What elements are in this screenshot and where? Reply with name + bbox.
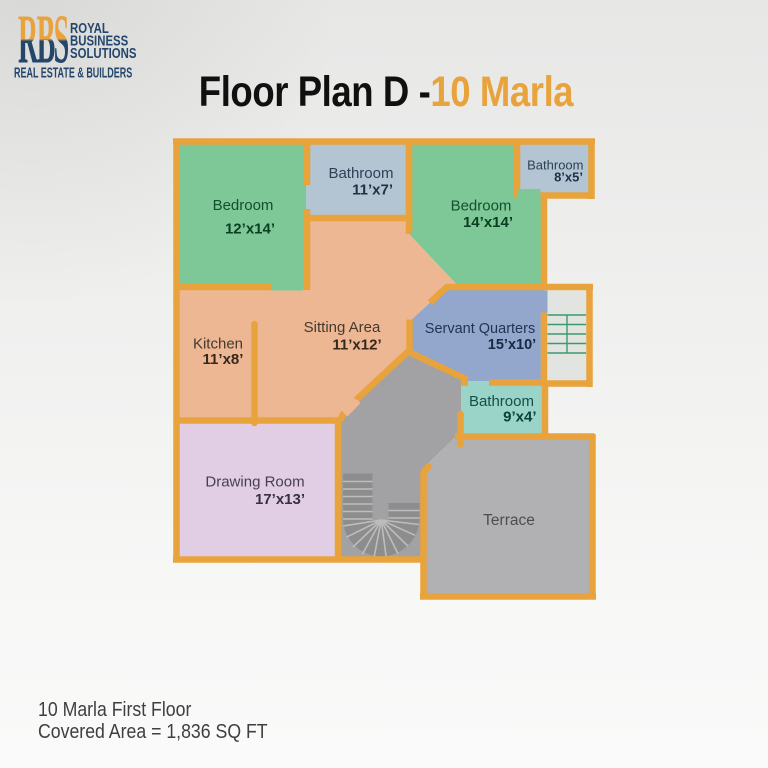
svg-text:9’x4’: 9’x4’ [503,409,536,426]
svg-text:REAL ESTATE & BUILDERS: REAL ESTATE & BUILDERS [14,64,132,81]
svg-text:17’x13’: 17’x13’ [255,491,305,508]
svg-text:10 Marla First Floor: 10 Marla First Floor [38,699,191,721]
svg-text:Sitting Area: Sitting Area [304,319,381,336]
svg-text:Covered Area = 1,836 SQ FT: Covered Area = 1,836 SQ FT [38,721,268,743]
svg-text:Floor Plan D -10 Marla: Floor Plan D -10 Marla [199,68,575,115]
svg-text:Kitchen: Kitchen [193,336,243,353]
svg-text:Bathroom: Bathroom [469,393,534,410]
svg-text:Bathroom: Bathroom [328,165,393,182]
svg-text:Bedroom: Bedroom [213,197,274,214]
svg-text:Drawing Room: Drawing Room [205,474,304,491]
svg-text:15’x10’: 15’x10’ [488,337,536,353]
svg-text:Bedroom: Bedroom [451,198,512,215]
svg-text:11’x7’: 11’x7’ [352,182,393,199]
svg-text:11’x12’: 11’x12’ [332,337,381,354]
svg-text:Terrace: Terrace [483,512,535,529]
svg-text:11’x8’: 11’x8’ [203,351,244,368]
svg-text:14’x14’: 14’x14’ [463,214,513,231]
svg-text:12’x14’: 12’x14’ [225,221,275,238]
svg-text:SOLUTIONS: SOLUTIONS [70,44,137,61]
svg-text:Servant Quarters: Servant Quarters [425,321,535,337]
svg-text:8’x5’: 8’x5’ [554,170,583,185]
